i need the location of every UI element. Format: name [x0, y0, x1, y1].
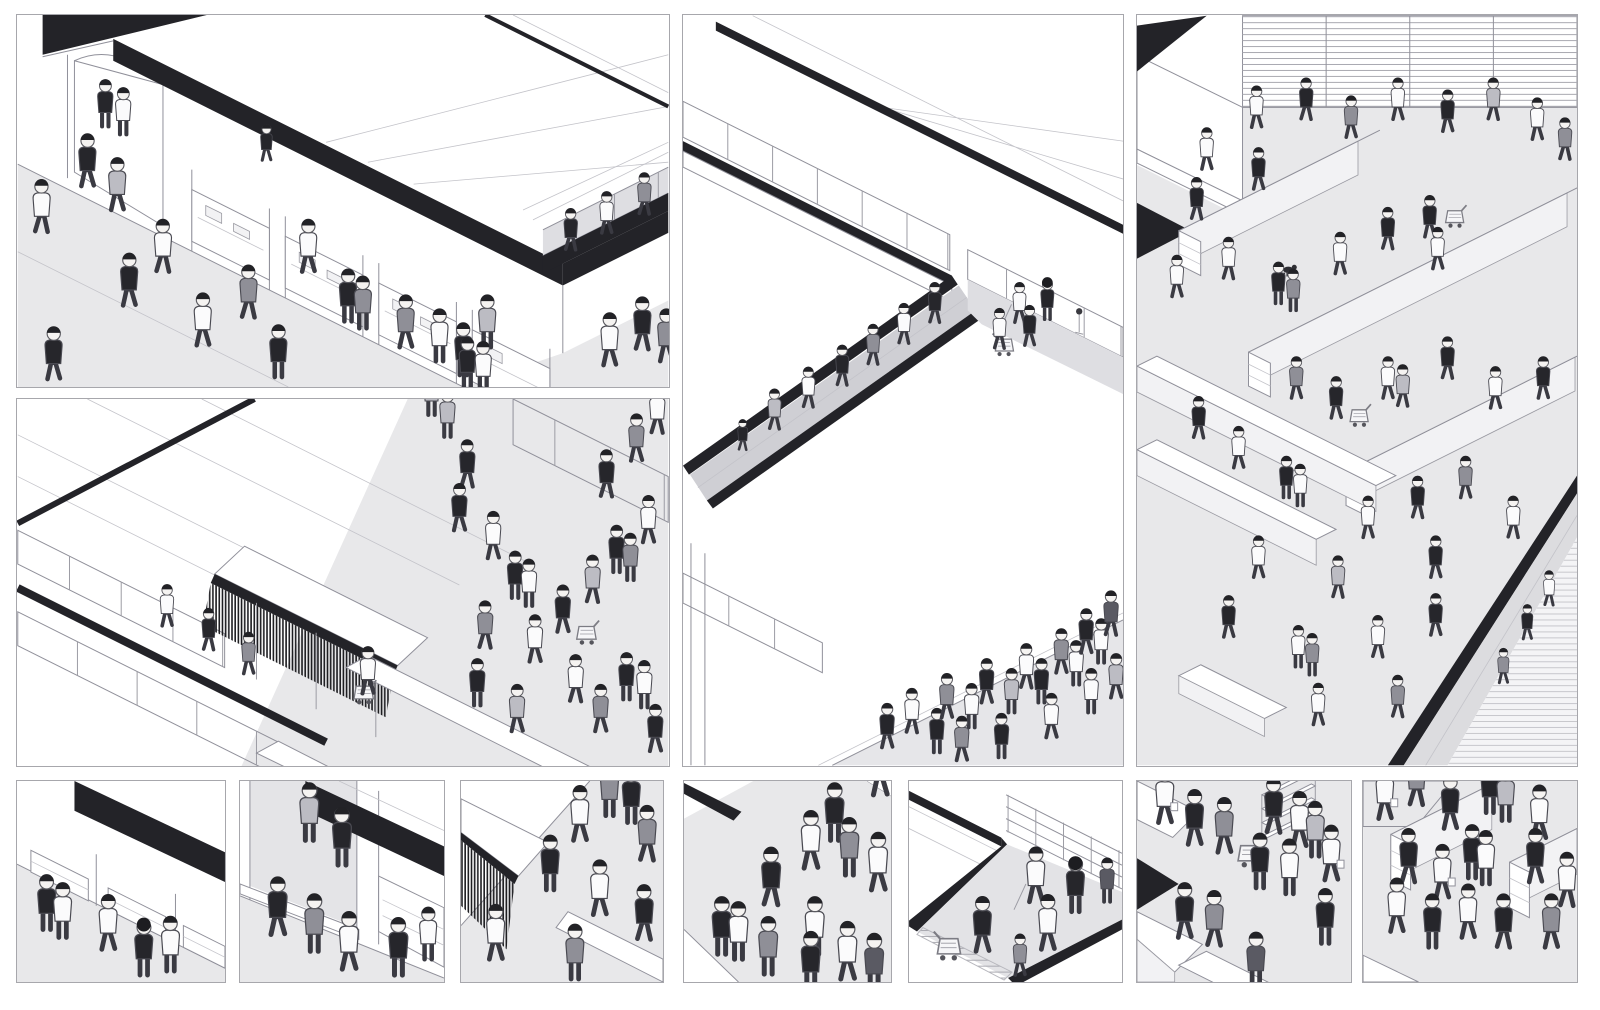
- illustration-board: [0, 0, 1600, 1010]
- person-figure: [98, 79, 113, 126]
- panel-supermarket-aisles[interactable]: [1136, 14, 1578, 767]
- roof-band: [74, 781, 225, 882]
- parapet-band: [683, 141, 952, 301]
- shopping-bag: [1171, 803, 1178, 811]
- person-figure: [79, 133, 96, 186]
- thumb-entrance-walkway[interactable]: [239, 780, 445, 983]
- panel-storefront-street[interactable]: [16, 14, 670, 388]
- thumb-storefront-display[interactable]: [16, 780, 226, 983]
- afro-hair: [1042, 277, 1053, 288]
- shopping-bag: [1448, 878, 1455, 886]
- upper-floor-right: [968, 250, 1123, 394]
- afro-hair: [137, 918, 151, 932]
- panel-market-hall[interactable]: [16, 398, 670, 767]
- thumb-awning-fringe[interactable]: [460, 780, 664, 983]
- panel-atrium-escalator[interactable]: [682, 14, 1124, 767]
- thumb-checkout-crowd[interactable]: [1136, 780, 1352, 983]
- person-figure: [160, 584, 173, 626]
- person-figure: [109, 157, 126, 210]
- skylight-roof: [326, 15, 668, 184]
- escalator-ramp: [683, 276, 982, 509]
- person-figure: [116, 87, 131, 134]
- person-figure: [242, 632, 255, 674]
- shopping-bag: [1391, 799, 1398, 807]
- thumb-aisle-shoppers[interactable]: [1362, 780, 1578, 983]
- afro-hair: [1068, 856, 1082, 870]
- shopping-bag: [1337, 860, 1344, 868]
- person-figure: [202, 608, 215, 650]
- person-figure: [261, 124, 273, 160]
- left-structure: [683, 543, 822, 765]
- person-figure: [1200, 127, 1213, 169]
- thumb-atrium-ramp[interactable]: [908, 780, 1123, 983]
- floor: [684, 781, 891, 982]
- thumb-plaza-crowd[interactable]: [683, 780, 892, 983]
